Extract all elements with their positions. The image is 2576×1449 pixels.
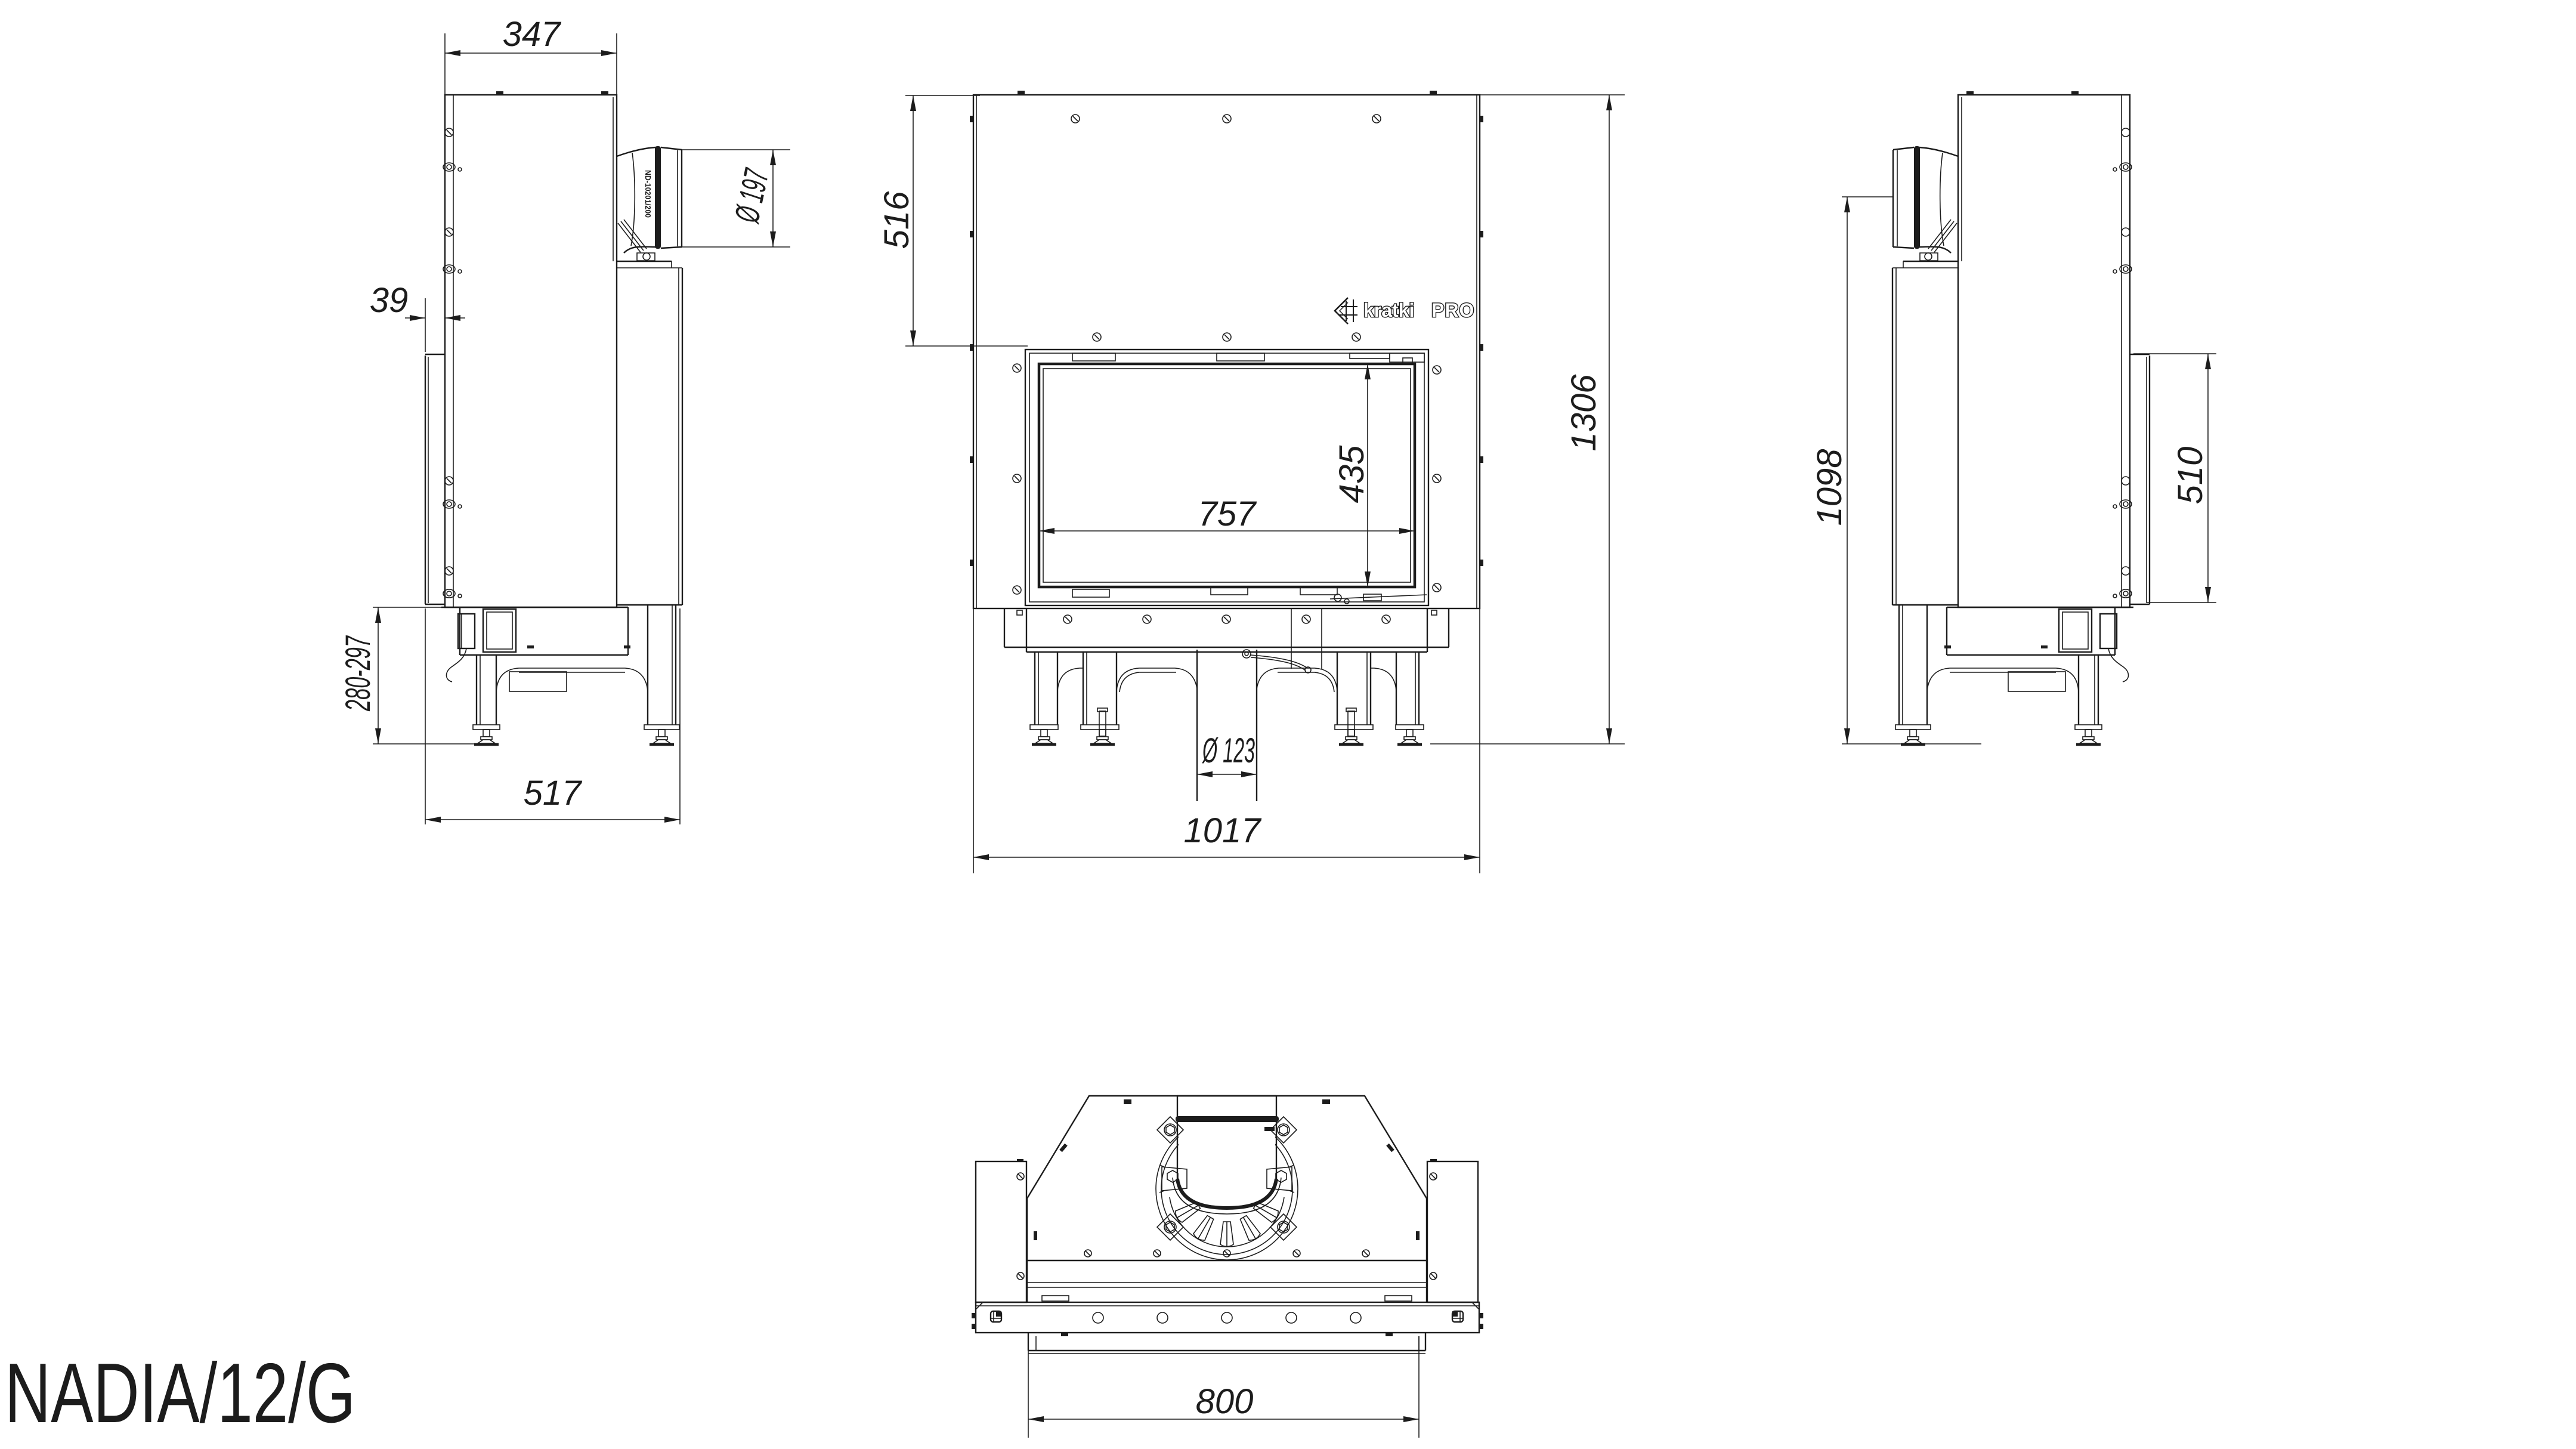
svg-text:Ø 123: Ø 123	[1202, 731, 1255, 770]
svg-text:ND-10201/200: ND-10201/200	[644, 170, 652, 218]
svg-text:435: 435	[1332, 445, 1371, 503]
svg-text:1098: 1098	[1810, 449, 1849, 526]
svg-text:517: 517	[524, 774, 583, 812]
svg-text:800: 800	[1196, 1382, 1254, 1421]
svg-text:516: 516	[877, 191, 916, 249]
svg-text:757: 757	[1198, 495, 1258, 533]
svg-text:510: 510	[2171, 447, 2210, 505]
svg-text:NADIA/12/G: NADIA/12/G	[5, 1346, 355, 1441]
svg-text:1017: 1017	[1183, 811, 1262, 850]
svg-text:39: 39	[370, 281, 409, 320]
svg-text:347: 347	[503, 15, 562, 54]
svg-text:PRO: PRO	[1431, 299, 1474, 321]
svg-text:kratki: kratki	[1363, 299, 1414, 321]
svg-text:280-297: 280-297	[339, 635, 378, 711]
svg-text:1306: 1306	[1564, 374, 1603, 452]
